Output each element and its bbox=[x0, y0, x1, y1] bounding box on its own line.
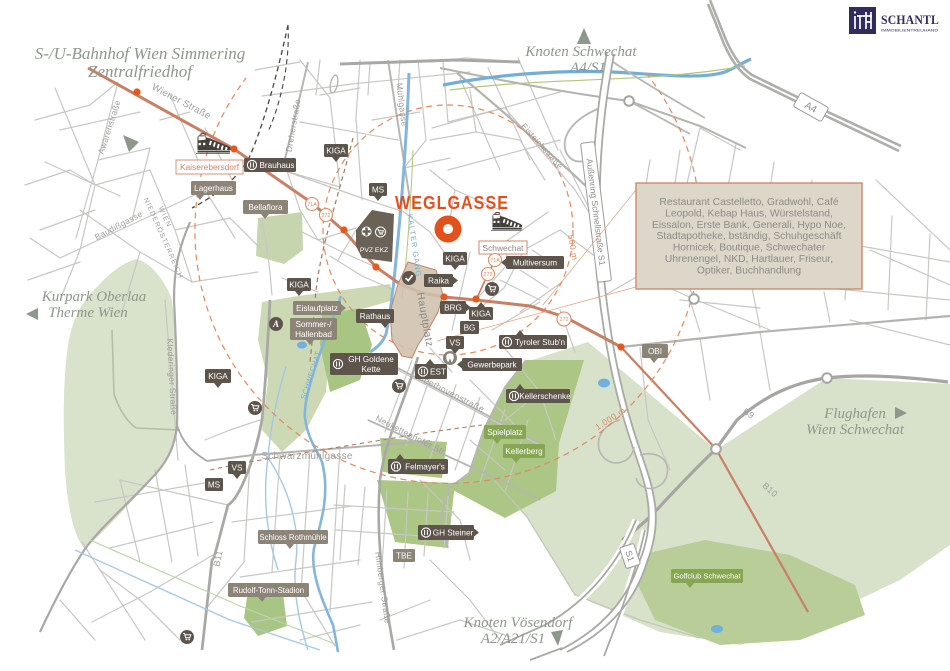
svg-text:Kurpark Oberlaa: Kurpark Oberlaa bbox=[41, 289, 147, 305]
svg-text:Zentralfriedhof: Zentralfriedhof bbox=[88, 62, 194, 81]
svg-text:KIGA: KIGA bbox=[471, 310, 491, 319]
svg-text:71A: 71A bbox=[307, 202, 317, 208]
svg-text:KIGA: KIGA bbox=[326, 147, 346, 156]
svg-text:Brauhaus: Brauhaus bbox=[259, 161, 294, 170]
svg-text:Optiker, Buchhandlung: Optiker, Buchhandlung bbox=[697, 265, 801, 276]
svg-text:EST: EST bbox=[430, 368, 446, 377]
svg-text:A4/S1: A4/S1 bbox=[569, 60, 606, 76]
svg-text:Kellerschenke: Kellerschenke bbox=[519, 392, 571, 401]
svg-text:Felmayer's: Felmayer's bbox=[405, 463, 445, 472]
svg-text:BRG: BRG bbox=[444, 304, 462, 313]
svg-text:272: 272 bbox=[560, 317, 569, 323]
svg-text:Knoten Vösendorf: Knoten Vösendorf bbox=[463, 615, 575, 631]
svg-text:KIGA: KIGA bbox=[289, 281, 309, 290]
svg-text:Schwechat: Schwechat bbox=[483, 243, 525, 253]
svg-text:Knoten Schwechat: Knoten Schwechat bbox=[524, 44, 637, 60]
svg-text:Hallenbad: Hallenbad bbox=[295, 330, 332, 339]
svg-text:KIGA: KIGA bbox=[445, 255, 465, 264]
svg-text:Gewerbepark: Gewerbepark bbox=[467, 361, 517, 370]
svg-text:Kellerberg: Kellerberg bbox=[505, 447, 543, 456]
svg-text:Eislaufplatz: Eislaufplatz bbox=[296, 304, 338, 313]
svg-text:A: A bbox=[272, 319, 279, 329]
svg-text:MS: MS bbox=[208, 481, 221, 490]
svg-text:PVZ EKZ: PVZ EKZ bbox=[360, 247, 388, 254]
svg-text:Stadtapotheke, bständig, Schu: Stadtapotheke, bständig, Schuhgeschäft bbox=[657, 231, 842, 242]
svg-text:VS: VS bbox=[450, 339, 461, 348]
svg-text:WEGLGASSE: WEGLGASSE bbox=[395, 192, 509, 213]
svg-text:Leopold, Kebap Haus, Würstelst: Leopold, Kebap Haus, Würstelstand, bbox=[665, 208, 833, 219]
svg-text:Eissalon, Erste Bank, Generali: Eissalon, Erste Bank, Generali, Hypo Noe… bbox=[652, 220, 846, 231]
svg-text:GH Goldene: GH Goldene bbox=[348, 355, 394, 364]
svg-text:Multiversum: Multiversum bbox=[513, 259, 557, 268]
svg-text:Tyroler Stub'n: Tyroler Stub'n bbox=[515, 338, 566, 347]
svg-text:Uhrenengel, NKD, Hartlauer, Fr: Uhrenengel, NKD, Hartlauer, Friseur, bbox=[665, 254, 833, 265]
svg-text:Therme Wien: Therme Wien bbox=[48, 305, 128, 321]
svg-text:Hornicek, Boutique, Schwechate: Hornicek, Boutique, Schwechater bbox=[673, 243, 826, 254]
svg-text:Rathaus: Rathaus bbox=[360, 312, 391, 321]
svg-text:BG: BG bbox=[464, 324, 476, 333]
svg-text:MS: MS bbox=[372, 186, 385, 195]
svg-text:Wien Schwechat: Wien Schwechat bbox=[806, 422, 905, 438]
svg-text:SCHANTL: SCHANTL bbox=[881, 12, 939, 27]
svg-text:IMMOBILIENTREUHAND: IMMOBILIENTREUHAND bbox=[881, 28, 938, 33]
svg-text:KIGA: KIGA bbox=[208, 372, 228, 381]
svg-text:Raika: Raika bbox=[428, 277, 449, 286]
svg-text:Golfclub Schwechat: Golfclub Schwechat bbox=[673, 572, 741, 581]
svg-text:272: 272 bbox=[322, 213, 331, 219]
svg-text:Schwarzmühlgasse: Schwarzmühlgasse bbox=[261, 451, 353, 462]
svg-text:VS: VS bbox=[232, 464, 243, 473]
svg-text:Rudolf-Tonn-Stadion: Rudolf-Tonn-Stadion bbox=[233, 586, 304, 595]
svg-text:A2/A21/S1: A2/A21/S1 bbox=[480, 631, 545, 647]
svg-text:Spielplatz: Spielplatz bbox=[487, 428, 523, 437]
svg-text:S-/U-Bahnhof Wien Simmering: S-/U-Bahnhof Wien Simmering bbox=[35, 44, 246, 63]
svg-text:Restaurant Castelletto, Gradwo: Restaurant Castelletto, Gradwohl, Café bbox=[659, 197, 838, 208]
svg-text:Schloss Rothmühle: Schloss Rothmühle bbox=[259, 533, 326, 542]
svg-text:GH Steiner: GH Steiner bbox=[433, 529, 474, 538]
svg-text:Kaiserebersdorf: Kaiserebersdorf bbox=[180, 162, 240, 172]
svg-text:Flughafen: Flughafen bbox=[823, 406, 886, 422]
svg-text:OBI: OBI bbox=[648, 347, 662, 356]
svg-text:Kette: Kette bbox=[361, 365, 381, 374]
svg-text:71A: 71A bbox=[490, 258, 500, 264]
svg-text:TBE: TBE bbox=[396, 552, 412, 561]
svg-text:Lagerhaus: Lagerhaus bbox=[194, 184, 233, 193]
svg-text:Bellaflora: Bellaflora bbox=[248, 203, 283, 212]
svg-text:Sommer-/: Sommer-/ bbox=[296, 320, 333, 329]
svg-text:272: 272 bbox=[484, 272, 493, 278]
